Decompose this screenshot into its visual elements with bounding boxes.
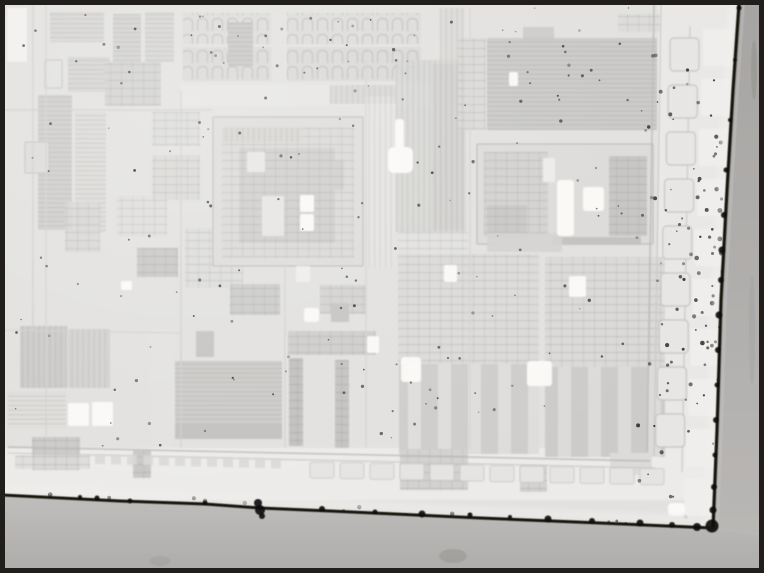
dust-speckle [694, 256, 699, 261]
dust-speckle [666, 389, 669, 392]
dust-speckle [471, 160, 474, 163]
dust-speckle [264, 97, 267, 100]
dust-speckle [22, 44, 25, 47]
dust-speckle [675, 308, 678, 311]
dust-speckle [476, 276, 477, 277]
dust-speckle [660, 450, 664, 454]
dust-speckle [697, 271, 701, 275]
dust-speckle [110, 422, 112, 424]
dust-speckle [706, 346, 709, 349]
dust-speckle [509, 41, 511, 43]
dust-speckle [169, 150, 171, 152]
dust-speckle [232, 377, 234, 379]
dust-speckle [380, 432, 383, 435]
dust-speckle [700, 341, 705, 346]
dust-speckle [303, 72, 305, 74]
dust-speckle [682, 348, 685, 351]
dust-speckle [514, 294, 516, 296]
dust-speckle [396, 363, 398, 365]
dust-speckle [340, 307, 343, 310]
dust-speckle [519, 249, 522, 252]
dust-speckle [264, 34, 267, 37]
dust-speckle [102, 445, 104, 447]
dust-speckle [45, 265, 48, 268]
dust-speckle [15, 408, 17, 410]
dust-speckle [199, 15, 201, 17]
dust-speckle [595, 167, 597, 169]
dust-speckle [285, 370, 287, 372]
dust-speckle [695, 329, 697, 331]
dust-speckle [493, 408, 496, 411]
edge-debris-blob [669, 522, 675, 528]
dust-speckle [437, 346, 440, 349]
dust-speckle [705, 325, 707, 327]
dust-speckle [668, 112, 672, 116]
dust-speckle [650, 196, 653, 199]
dust-speckle [549, 352, 551, 354]
dust-speckle [413, 423, 416, 426]
dust-speckle [656, 279, 659, 282]
dust-speckle [686, 83, 689, 86]
dust-speckle [203, 136, 205, 138]
dust-speckle [659, 394, 661, 396]
dust-speckle [214, 54, 217, 57]
dust-speckle [701, 311, 704, 314]
dust-speckle [230, 320, 233, 323]
dust-speckle [703, 189, 706, 192]
dust-speckle [455, 117, 457, 119]
edge-debris-blob [706, 520, 719, 533]
dust-speckle [290, 156, 292, 158]
dust-speckle [685, 399, 687, 401]
dust-speckle [519, 100, 522, 103]
edge-debris-blob [728, 118, 732, 122]
dust-speckle [309, 17, 312, 20]
dust-speckle [343, 391, 346, 394]
dust-speckle [361, 202, 363, 204]
dust-speckle [641, 214, 644, 217]
dust-speckle [346, 276, 349, 279]
dust-speckle [48, 170, 50, 172]
edge-debris-blob [733, 58, 737, 62]
edge-debris-blob [508, 515, 512, 519]
dust-speckle [354, 89, 357, 92]
dust-speckle [209, 204, 212, 207]
dust-speckle [279, 154, 282, 157]
dust-speckle [516, 142, 518, 144]
dust-speckle [676, 230, 678, 232]
dust-speckle [679, 275, 683, 279]
dust-speckle [148, 422, 151, 425]
smudge [749, 275, 755, 385]
dust-speckle [353, 304, 356, 307]
dust-speckle [564, 51, 567, 54]
edge-debris-blob [419, 511, 426, 518]
dust-speckle [392, 410, 394, 412]
dust-speckle [661, 323, 663, 325]
dust-speckle [117, 46, 120, 49]
dust-speckle [578, 29, 581, 32]
dust-speckle [431, 171, 434, 174]
dust-speckle [687, 227, 690, 230]
dust-speckle [654, 54, 658, 58]
edge-debris-blob [373, 510, 378, 515]
dust-speckle [557, 95, 559, 97]
edge-debris-blob [95, 496, 100, 501]
dust-speckle [48, 334, 51, 337]
dust-speckle [641, 110, 643, 112]
dust-speckle [392, 48, 395, 51]
dust-speckle [15, 331, 18, 334]
dust-speckle [219, 285, 222, 288]
dust-speckle [636, 236, 639, 239]
dust-speckle [568, 74, 570, 76]
edge-debris-blob [737, 6, 742, 11]
dust-speckle [648, 362, 652, 366]
dust-speckle [32, 157, 34, 159]
dust-speckle [657, 101, 659, 103]
dust-speckle [704, 363, 707, 366]
dust-speckle [339, 118, 341, 120]
dust-speckle [20, 319, 21, 320]
dust-speckle [361, 385, 364, 388]
dust-speckle [238, 131, 241, 134]
dust-speckle [207, 201, 210, 204]
dust-speckle [394, 247, 397, 250]
dust-speckle [668, 243, 670, 245]
dust-speckle [689, 252, 693, 256]
dust-speckle [697, 180, 700, 183]
dust-speckle [416, 161, 418, 163]
dust-speckle [329, 39, 331, 41]
dust-speckle [559, 119, 562, 122]
dust-speckle [699, 236, 701, 238]
dust-speckle [328, 339, 330, 341]
dust-speckle [478, 411, 480, 413]
edge-debris-blob [545, 516, 552, 523]
dust-speckle [491, 315, 493, 317]
edge-debris-blob [589, 518, 595, 524]
dust-speckle [653, 196, 657, 200]
edge-debris-blob [711, 484, 717, 490]
dust-speckle [238, 269, 240, 271]
dust-speckle [302, 228, 304, 230]
dust-speckle [410, 381, 413, 384]
dust-speckle [558, 99, 560, 101]
dust-speckle [474, 392, 476, 394]
dust-speckle [280, 28, 283, 31]
dust-speckle [534, 7, 536, 9]
dust-speckle [588, 299, 591, 302]
vignette [2, 2, 762, 571]
dust-speckle [617, 205, 619, 207]
edge-debris-blob [718, 277, 724, 283]
dust-speckle [567, 64, 570, 67]
die-photo-svg [0, 0, 764, 573]
dust-speckle [562, 45, 565, 48]
edge-debris-blob [468, 513, 473, 518]
dust-speckle [404, 72, 406, 74]
dust-speckle [544, 405, 546, 407]
dust-speckle [150, 346, 152, 348]
dust-speckle [457, 272, 460, 275]
dust-speckle [368, 85, 370, 87]
dust-speckle [682, 278, 685, 281]
dust-speckle [417, 204, 420, 207]
dust-speckle [713, 79, 715, 81]
dust-speckle [621, 212, 623, 214]
dust-speckle [341, 363, 343, 365]
edge-debris-blob [710, 507, 717, 514]
dust-speckle [458, 357, 461, 360]
dust-speckle [464, 104, 466, 106]
dust-speckle [515, 31, 517, 33]
dust-speckle [357, 216, 359, 218]
dust-speckle [665, 209, 667, 211]
dust-speckle [176, 291, 178, 293]
dust-speckle [626, 99, 629, 102]
dust-speckle [447, 357, 449, 359]
dust-speckle [148, 235, 151, 238]
dust-speckle [696, 101, 699, 104]
dust-speckle [207, 128, 209, 130]
smudge [149, 556, 171, 566]
dust-speckle [590, 69, 593, 72]
dust-speckle [710, 114, 712, 116]
dust-speckle [678, 223, 681, 226]
dust-speckle [191, 34, 193, 36]
dust-speckle [434, 406, 437, 409]
dust-speckle [337, 21, 339, 23]
dust-speckle [696, 403, 698, 405]
dust-speckle [223, 62, 225, 64]
dust-speckle [40, 257, 42, 259]
edge-debris-blob [128, 499, 133, 504]
dust-speckle [49, 122, 52, 125]
dust-speckle [682, 262, 685, 265]
dust-speckle [526, 71, 528, 73]
dust-speckle [370, 19, 372, 21]
dust-speckle [529, 82, 531, 84]
dust-speckle [647, 125, 650, 128]
dust-speckle [667, 382, 669, 384]
edge-debris-blob [713, 417, 719, 423]
dust-speckle [694, 298, 698, 302]
vignette-overlay [2, 2, 762, 571]
edge-debris-blob [319, 506, 325, 512]
dust-speckle [716, 146, 718, 148]
dust-speckle [402, 98, 404, 100]
dust-speckle [134, 27, 137, 30]
dust-speckle [298, 153, 300, 155]
dust-speckle [108, 127, 110, 129]
dust-speckle [159, 444, 162, 447]
dust-speckle [120, 82, 123, 85]
edge-debris-blob [715, 383, 720, 388]
dust-speckle [714, 135, 718, 139]
dust-speckle [128, 239, 130, 241]
dust-speckle [116, 437, 119, 440]
edge-debris-blob [203, 501, 208, 506]
dust-speckle [705, 208, 709, 212]
dust-speckle [120, 295, 122, 297]
smudge [751, 40, 757, 100]
dust-speckle [348, 61, 350, 63]
dust-speckle [276, 64, 279, 67]
dust-speckle [713, 155, 716, 158]
dust-speckle [102, 43, 105, 46]
dust-speckle [708, 235, 711, 238]
edge-debris-blob [259, 513, 265, 519]
dust-speckle [471, 311, 474, 314]
dust-speckle [686, 68, 689, 71]
dust-speckle [598, 215, 600, 217]
dust-speckle [204, 430, 206, 432]
dust-speckle [638, 479, 642, 483]
dust-speckle [77, 283, 79, 285]
dust-speckle [210, 51, 213, 54]
dust-speckle [407, 60, 409, 62]
dust-speckle [681, 217, 683, 219]
edge-debris-blob [693, 523, 701, 531]
dust-speckle [351, 25, 354, 28]
dust-speckle [497, 235, 498, 236]
dust-speckle [693, 168, 695, 170]
dust-speckle [287, 355, 290, 358]
dust-speckle [34, 29, 37, 32]
dust-speckle [437, 397, 439, 399]
dust-speckle [669, 495, 672, 498]
dust-speckle [621, 342, 624, 345]
micrograph-figure [0, 0, 764, 573]
edge-debris-blob [724, 168, 729, 173]
dust-speckle [636, 423, 640, 427]
dust-speckle [429, 388, 432, 391]
dust-speckle [644, 129, 647, 132]
dust-speckle [576, 179, 579, 182]
dust-speckle [468, 192, 470, 194]
dust-speckle [341, 268, 343, 270]
dust-speckle [193, 315, 195, 317]
dust-speckle [601, 355, 603, 357]
dust-speckle [502, 29, 504, 31]
dust-speckle [670, 361, 673, 364]
dust-speckle [706, 341, 708, 343]
dust-speckle [237, 35, 239, 37]
dust-speckle [666, 363, 669, 366]
dust-speckle [316, 67, 318, 69]
dust-speckle [450, 21, 453, 24]
dust-speckle [672, 118, 674, 120]
dust-speckle [202, 15, 204, 17]
edge-debris-blob [715, 347, 721, 353]
dust-speckle [233, 379, 235, 381]
dust-speckle [711, 228, 714, 231]
dust-speckle [628, 7, 629, 8]
dust-speckle [272, 393, 274, 395]
edge-debris-blob [713, 453, 718, 458]
dust-speckle [660, 262, 662, 264]
dust-speckle [653, 425, 655, 427]
dust-speckle [579, 308, 581, 310]
dust-speckle [75, 60, 77, 62]
dust-speckle [395, 59, 398, 62]
dust-speckle [507, 55, 510, 58]
smudge [439, 549, 467, 563]
dust-speckle [659, 90, 663, 94]
dust-speckle [414, 35, 416, 37]
dust-speckle [114, 389, 116, 391]
dust-speckle [665, 343, 669, 347]
dust-speckle [692, 314, 696, 318]
dust-speckle [391, 437, 392, 438]
dust-speckle [133, 169, 136, 172]
dust-speckle [277, 198, 279, 200]
dust-speckle [425, 403, 427, 405]
dust-speckle [673, 86, 676, 89]
dust-speckle [198, 278, 201, 281]
dust-speckle [689, 382, 693, 386]
dust-speckle [449, 200, 451, 202]
dust-speckle [352, 124, 354, 126]
dust-speckle [84, 14, 86, 16]
dust-speckle [355, 279, 357, 281]
edge-debris-blob [721, 212, 727, 218]
dust-speckle [714, 152, 717, 155]
dust-speckle [703, 394, 705, 396]
dust-speckle [563, 284, 566, 287]
dust-speckle [262, 47, 264, 49]
dust-speckle [135, 379, 138, 382]
edge-debris-blob [78, 495, 82, 499]
edge-debris-blob [637, 520, 644, 527]
dust-speckle [670, 189, 672, 191]
dust-speckle [346, 44, 348, 46]
edge-debris-blob [719, 247, 726, 254]
dust-speckle [198, 121, 201, 124]
dust-speckle [363, 369, 365, 371]
dust-speckle [619, 43, 621, 45]
dust-speckle [438, 145, 440, 147]
dust-speckle [511, 385, 513, 387]
dust-speckle [128, 71, 131, 74]
dust-speckle [696, 195, 700, 199]
dust-speckle [581, 74, 584, 77]
dust-speckle [599, 79, 601, 81]
dust-speckle [218, 25, 221, 28]
edge-debris-blob [716, 312, 723, 319]
dust-speckle [647, 473, 649, 475]
dust-speckle [596, 208, 598, 210]
dust-speckle [687, 430, 690, 433]
